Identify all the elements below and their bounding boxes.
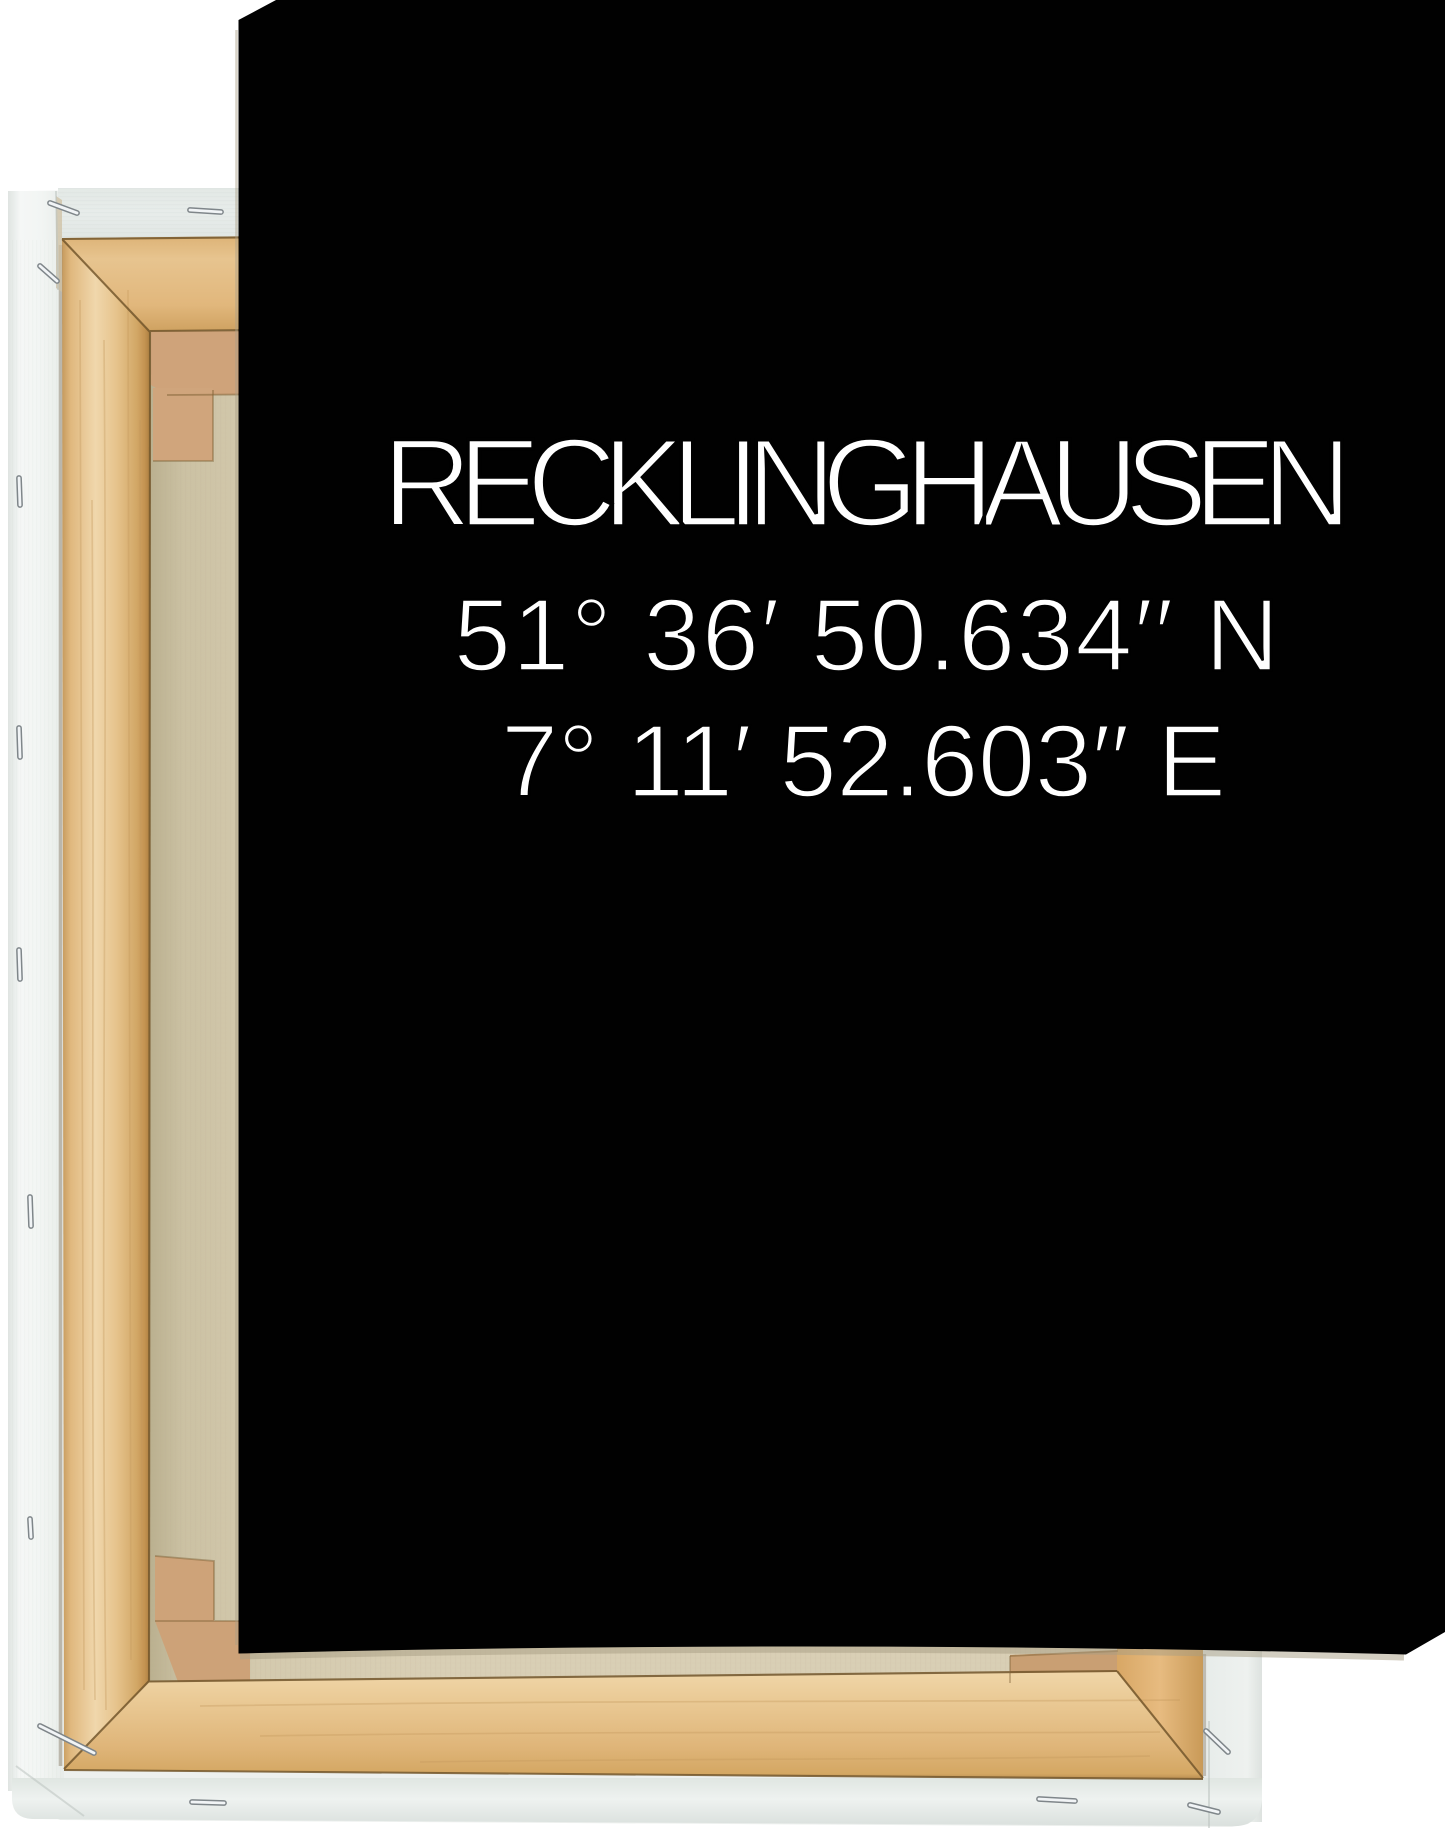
svg-text:7° 11′ 52.603′′ E: 7° 11′ 52.603′′ E [501, 704, 1225, 819]
svg-text:51° 36′ 50.634′′ N: 51° 36′ 50.634′′ N [454, 578, 1281, 693]
svg-text:RECKLINGHAUSEN: RECKLINGHAUSEN [382, 414, 1343, 553]
